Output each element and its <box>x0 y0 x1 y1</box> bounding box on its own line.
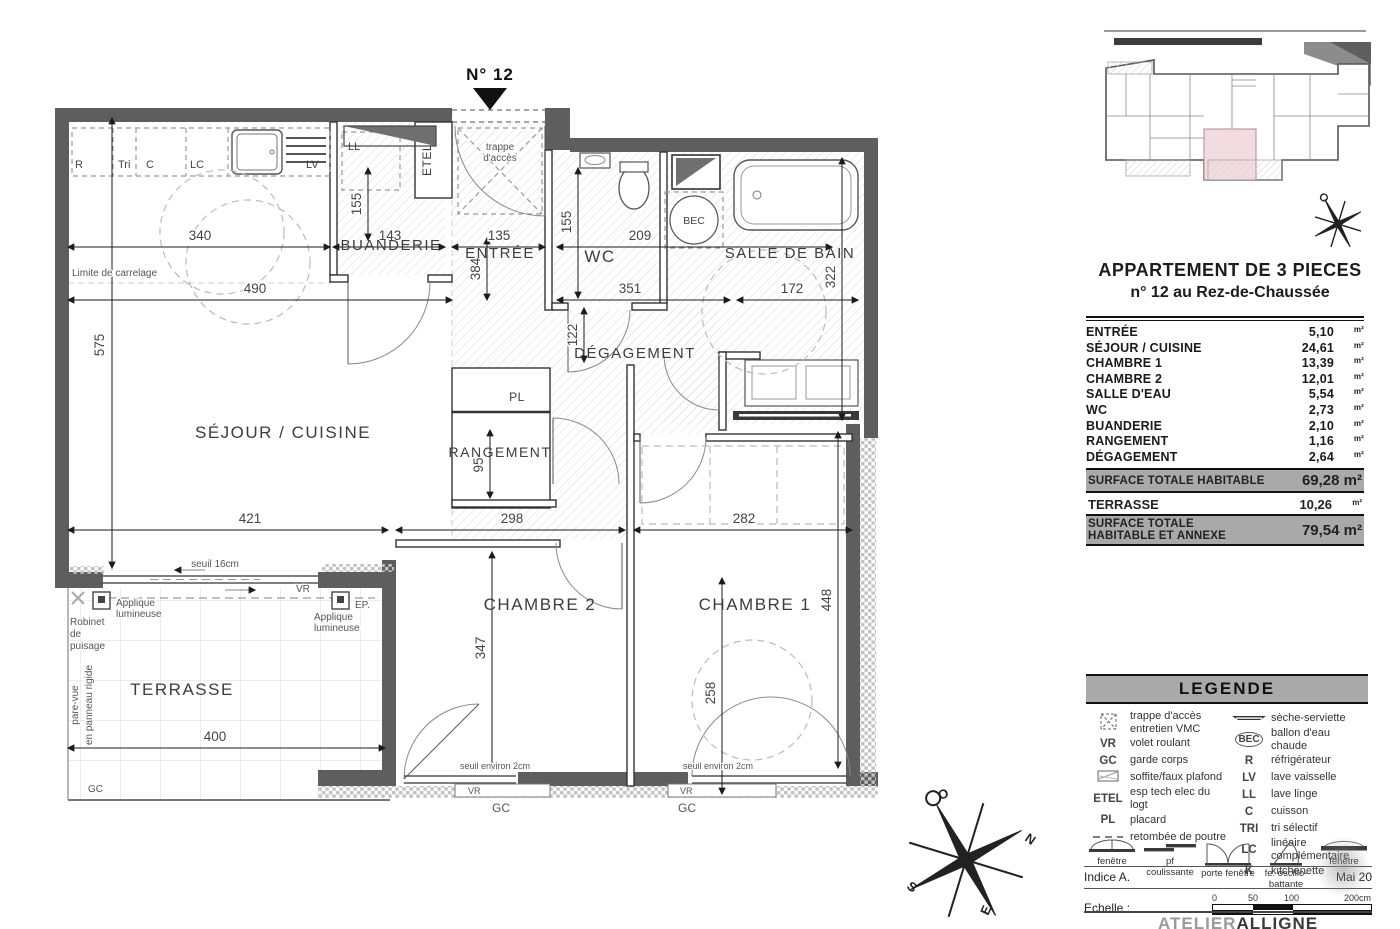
room-label-sejour: SÉJOUR / CUISINE <box>195 423 371 442</box>
parevue-l1: pare-vue <box>70 685 81 725</box>
compass-s: S <box>904 878 920 895</box>
dim-400: 400 <box>204 729 227 744</box>
terrasse-unit: m² <box>1332 498 1362 507</box>
seche-serviette-icon <box>1227 713 1271 725</box>
pf-coulissante-icon <box>1144 836 1196 854</box>
legend-item: Ccuisson <box>1227 803 1368 820</box>
area-unit: m² <box>1334 403 1364 412</box>
limite-carrelage-label: Limite de carrelage <box>72 268 157 279</box>
table-row: CHAMBRE 113,39m² <box>1086 356 1364 372</box>
area-label: RANGEMENT <box>1086 434 1288 448</box>
area-unit: m² <box>1334 450 1364 459</box>
legend-label: volet roulant <box>1130 737 1227 750</box>
title-line2: n° 12 au Rez-de-Chaussée <box>1080 282 1380 304</box>
total-annexe-row: SURFACE TOTALE HABITABLE ET ANNEXE 79,54… <box>1086 516 1364 546</box>
legend-label: soffite/faux plafond <box>1130 771 1227 784</box>
entrance-arrow-icon <box>473 88 507 110</box>
total-label: SURFACE TOTALE HABITABLE <box>1088 475 1302 487</box>
area-value: 24,61 <box>1288 341 1334 355</box>
legend-item: sèche-serviette <box>1227 710 1368 727</box>
gc-label-terrasse: GC <box>88 784 103 795</box>
table-row: SALLE D'EAU5,54m² <box>1086 387 1364 403</box>
dim-122: 122 <box>565 324 580 347</box>
apartment-title: APPARTEMENT DE 3 PIECES n° 12 au Rez-de-… <box>1080 258 1380 304</box>
area-unit: m² <box>1334 387 1364 396</box>
applique1-l1: Applique <box>116 598 155 609</box>
compass-n: N <box>1022 830 1038 848</box>
legend-label: cuisson <box>1271 805 1368 818</box>
legend-label: esp tech elec du logt <box>1130 786 1227 811</box>
dim-258: 258 <box>703 682 718 705</box>
dim-347: 347 <box>473 637 488 660</box>
indice-label: Indice A. <box>1084 870 1130 884</box>
legend-sym: VR <box>1086 738 1130 750</box>
dim-322: 322 <box>823 266 838 289</box>
room-label-buanderie: BUANDERIE <box>340 237 441 254</box>
table-row: RANGEMENT1,16m² <box>1086 434 1364 450</box>
area-value: 13,39 <box>1288 356 1334 370</box>
legend-sym: ETEL <box>1086 793 1130 805</box>
area-unit: m² <box>1334 434 1364 443</box>
area-label: BUANDERIE <box>1086 419 1288 433</box>
legend-item: GCgarde corps <box>1086 752 1227 769</box>
terrasse-row: TERRASSE 10,26 m² <box>1086 493 1364 516</box>
room-label-chambre2: CHAMBRE 2 <box>484 595 597 614</box>
kitchen-label-lc: LC <box>190 159 204 171</box>
kitchen-counter: R Tri C LC LV <box>72 128 330 176</box>
legend-sym: LV <box>1227 772 1271 784</box>
legend-sym: PL <box>1086 814 1130 826</box>
firm-name-bold: ALLIGNE <box>1236 914 1318 929</box>
table-row: CHAMBRE 212,01m² <box>1086 372 1364 388</box>
legend-item: VRvolet roulant <box>1086 735 1227 752</box>
dim-340: 340 <box>189 228 212 243</box>
ep-label: EP. <box>355 600 370 611</box>
room-label-pl: PL <box>509 390 525 404</box>
total-habitable-row: SURFACE TOTALE HABITABLE 69,28 m² <box>1086 468 1364 493</box>
terrasse-value: 10,26 <box>1286 497 1332 512</box>
applique2-l2: lumineuse <box>314 623 360 634</box>
firm-name-light: ATELIER <box>1158 914 1236 929</box>
room-label-chambre1: CHAMBRE 1 <box>699 595 812 614</box>
compass-o: O <box>936 785 951 803</box>
area-label: CHAMBRE 1 <box>1086 356 1288 370</box>
area-value: 2,10 <box>1288 419 1334 433</box>
table-row: ENTRÉE5,10m² <box>1086 325 1364 341</box>
area-value: 2,73 <box>1288 403 1334 417</box>
applique2-l1: Applique <box>314 612 353 623</box>
scale-tick: 50 <box>1248 893 1258 903</box>
dim-282: 282 <box>733 511 756 526</box>
legend-label: sèche-serviette <box>1271 712 1368 725</box>
compass-e: E <box>977 903 994 917</box>
vr-label-ch2: VR <box>468 786 481 796</box>
room-label-wc: WC <box>584 247 615 266</box>
legend-label: garde corps <box>1130 754 1227 767</box>
bec-label: BEC <box>683 215 705 227</box>
room-label-degagement: DÉGAGEMENT <box>574 345 696 362</box>
room-label-terrasse: TERRASSE <box>130 680 234 699</box>
key-plan-graphic <box>1086 34 1376 184</box>
kitchen-label-cuisson: C <box>146 159 154 171</box>
area-table: ENTRÉE5,10m² SÉJOUR / CUISINE24,61m² CHA… <box>1086 316 1364 546</box>
table-row: BUANDERIE2,10m² <box>1086 419 1364 435</box>
legend-item: Rréfrigérateur <box>1227 752 1368 769</box>
legend-item: BECballon d'eau chaude <box>1227 727 1368 752</box>
bottom-rule <box>1084 911 1372 913</box>
firm-logo: ATELIERALLIGNE <box>1158 914 1318 929</box>
area-unit: m² <box>1334 356 1364 365</box>
area-unit: m² <box>1334 372 1364 381</box>
table-row: DÉGAGEMENT2,64m² <box>1086 450 1364 466</box>
area-label: WC <box>1086 403 1288 417</box>
dim-135: 135 <box>488 228 511 243</box>
page: trappe d'accès N° 12 <box>0 0 1400 929</box>
scale-tick: 100 <box>1284 893 1299 903</box>
legend-item: LVlave vaisselle <box>1227 769 1368 786</box>
legend-label: placard <box>1130 814 1227 827</box>
floor-plan: trappe d'accès N° 12 <box>0 0 1080 929</box>
soffite-icon <box>1086 770 1130 785</box>
legend-label: tri sélectif <box>1271 822 1368 835</box>
room-label-entree: ENTRÉE <box>465 245 535 262</box>
legend-label: réfrigérateur <box>1271 754 1368 767</box>
table-row: SÉJOUR / CUISINE24,61m² <box>1086 341 1364 357</box>
gc-label-ch1: GC <box>678 801 696 815</box>
kitchen-label-tri: Tri <box>118 159 130 171</box>
legend-sym: TRI <box>1227 823 1271 835</box>
bec-icon: BEC <box>1235 732 1262 747</box>
trappe-acces-icon <box>1086 713 1130 733</box>
robinet-l3: puisage <box>70 641 105 652</box>
dim-351: 351 <box>619 281 642 296</box>
area-unit: m² <box>1334 419 1364 428</box>
legend-item: ETELesp tech elec du logt <box>1086 786 1227 811</box>
legend-item: LLlave linge <box>1227 786 1368 803</box>
room-label-sdb: SALLE DE BAIN <box>725 245 855 262</box>
total-annexe-value: 79,54 m² <box>1302 522 1362 539</box>
dim-155-buanderie: 155 <box>349 193 364 216</box>
fenetre-icon <box>1089 836 1135 854</box>
dim-298: 298 <box>501 511 524 526</box>
area-unit: m² <box>1334 325 1364 334</box>
legend-item: PLplacard <box>1086 812 1227 829</box>
legend-header: LEGENDE <box>1086 674 1368 704</box>
dim-172: 172 <box>781 281 804 296</box>
scale-tick: 0 <box>1212 893 1217 903</box>
unit-number: N° 12 <box>466 65 514 84</box>
trappe-label-2: d'accès <box>483 153 517 164</box>
area-label: ENTRÉE <box>1086 325 1288 339</box>
robinet-l2: de <box>70 629 82 640</box>
dim-575: 575 <box>92 334 107 357</box>
legend-label: lave linge <box>1271 788 1368 801</box>
dim-448: 448 <box>819 589 834 612</box>
seuil16-label: seuil 16cm <box>191 559 239 570</box>
area-label: SALLE D'EAU <box>1086 387 1288 401</box>
seuil2-label-ch2: seuil environ 2cm <box>460 761 530 771</box>
legend-sym: C <box>1227 806 1271 818</box>
parevue-l2: en panneau rigide <box>84 665 95 746</box>
legend-label: lave vaisselle <box>1271 771 1368 784</box>
area-label: CHAMBRE 2 <box>1086 372 1288 386</box>
room-label-rangement: RANGEMENT <box>449 444 552 460</box>
right-panel: APPARTEMENT DE 3 PIECES n° 12 au Rez-de-… <box>1080 0 1380 929</box>
total-annexe-label: SURFACE TOTALE HABITABLE ET ANNEXE <box>1088 518 1258 542</box>
legend-label: entretien VMC <box>1130 723 1200 735</box>
vr-label-sejour: VR <box>296 584 310 595</box>
legend-sym: LL <box>1227 789 1271 801</box>
area-value: 5,54 <box>1288 387 1334 401</box>
dim-421: 421 <box>239 511 262 526</box>
area-value: 12,01 <box>1288 372 1334 386</box>
legend-item: trappe d'accèsentretien VMC <box>1086 710 1227 735</box>
porte-fenetre-icon <box>1205 836 1251 866</box>
legend-item: TRItri sélectif <box>1227 820 1368 837</box>
area-label: DÉGAGEMENT <box>1086 450 1288 464</box>
mini-compass-icon <box>1306 188 1370 252</box>
lave-linge-label: LL <box>348 141 360 153</box>
terrasse-label: TERRASSE <box>1088 497 1286 512</box>
legend-label: trappe d'accès <box>1130 710 1201 722</box>
total-value: 69,28 m² <box>1302 472 1362 489</box>
gc-label-ch2: GC <box>492 801 510 815</box>
legend-label: ballon d'eau chaude <box>1271 727 1368 752</box>
legend-item: soffite/faux plafond <box>1086 769 1227 786</box>
compass-rose: N S E O <box>874 762 1051 929</box>
applique1-l2: lumineuse <box>116 609 162 620</box>
smudge-artifact <box>1316 836 1370 898</box>
title-line1: APPARTEMENT DE 3 PIECES <box>1080 258 1380 282</box>
dim-490: 490 <box>244 281 267 296</box>
area-value: 1,16 <box>1288 434 1334 448</box>
kitchen-label-lv: LV <box>306 159 319 171</box>
dim-155-wc: 155 <box>559 211 574 234</box>
vr-label-ch1: VR <box>680 786 693 796</box>
trappe-label-1: trappe <box>486 142 515 153</box>
kitchen-label-fridge: R <box>75 159 83 171</box>
table-row: WC2,73m² <box>1086 403 1364 419</box>
robinet-l1: Robinet <box>70 617 105 628</box>
area-unit: m² <box>1334 341 1364 350</box>
legend-sym: R <box>1227 755 1271 767</box>
etel-label: ETEL <box>420 144 434 176</box>
area-label: SÉJOUR / CUISINE <box>1086 341 1288 355</box>
area-value: 2,64 <box>1288 450 1334 464</box>
dim-209: 209 <box>629 228 652 243</box>
area-value: 5,10 <box>1288 325 1334 339</box>
legend-sym: GC <box>1086 755 1130 767</box>
seuil2-label-ch1: seuil environ 2cm <box>683 761 753 771</box>
oscillo-battante-icon <box>1268 836 1304 866</box>
panel-top-divider <box>1104 30 1366 32</box>
